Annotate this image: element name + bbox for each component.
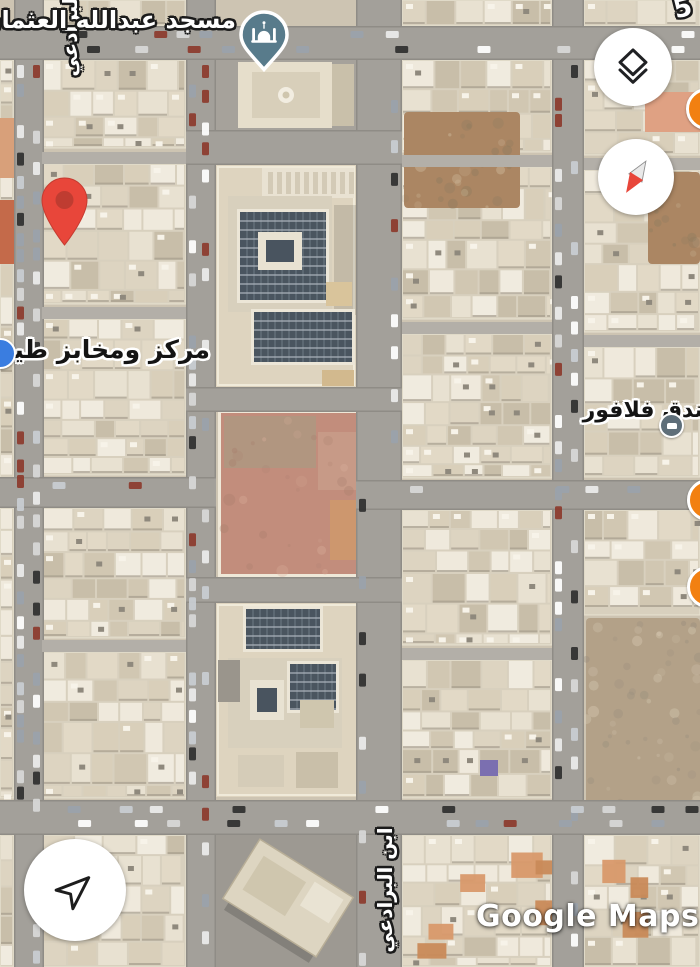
mosque-pin-marker[interactable] — [238, 9, 290, 73]
navigation-arrow-icon — [50, 865, 100, 915]
layers-icon — [613, 47, 653, 87]
hotel-poi-label[interactable]: فندق فلافور — [588, 399, 700, 423]
bakery-poi-label[interactable]: مركز ومخابز طيبه — [30, 336, 210, 364]
satellite-imagery[interactable] — [0, 0, 700, 967]
compass-button[interactable] — [598, 139, 674, 215]
red-pin-icon — [42, 178, 87, 245]
mosque-poi-label[interactable]: مسجد عبدالله العثمان — [28, 7, 236, 33]
google-maps-viewport: ابن البرادعي ابن البرادعي م 5 مسجد عبدال… — [0, 0, 700, 967]
compass-icon — [614, 155, 658, 199]
bed-icon — [667, 423, 677, 429]
google-maps-watermark: Google Maps — [476, 899, 699, 934]
layers-button[interactable] — [594, 28, 672, 106]
hotel-poi-marker[interactable] — [659, 413, 684, 438]
destination-pin-marker[interactable] — [41, 177, 88, 246]
street-label-ibn-albaradei-bottom: ابن البرادعي — [371, 820, 399, 960]
my-location-button[interactable] — [24, 839, 126, 941]
